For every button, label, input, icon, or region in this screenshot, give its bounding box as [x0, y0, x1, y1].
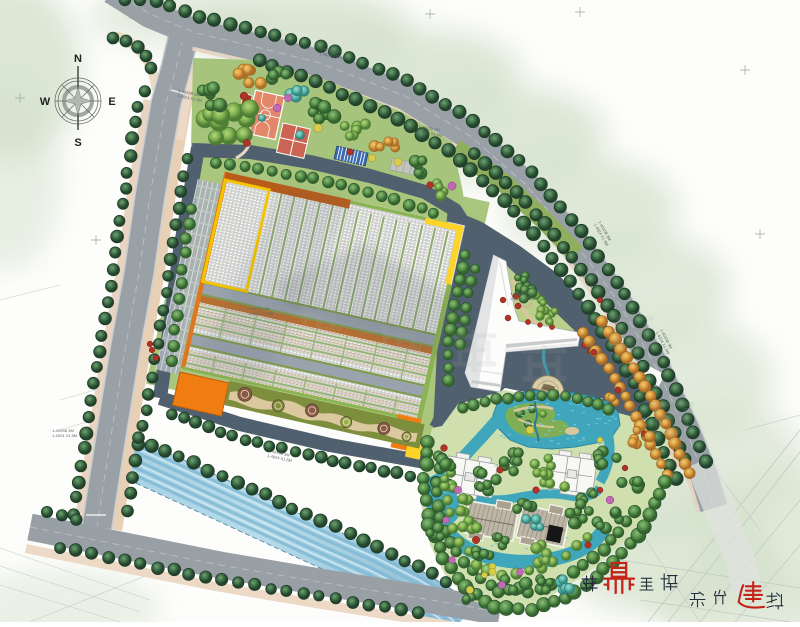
svg-text:W: W	[40, 96, 51, 108]
svg-text:1-4024 X1.5M: 1-4024 X1.5M	[52, 433, 77, 438]
svg-text:1-4024 X1.5M: 1-4024 X1.5M	[248, 311, 273, 316]
svg-text:N: N	[74, 53, 82, 65]
svg-text:S: S	[74, 137, 81, 149]
svg-text:E: E	[108, 96, 115, 108]
svg-text:1-4024 X1.5M: 1-4024 X1.5M	[510, 296, 535, 301]
